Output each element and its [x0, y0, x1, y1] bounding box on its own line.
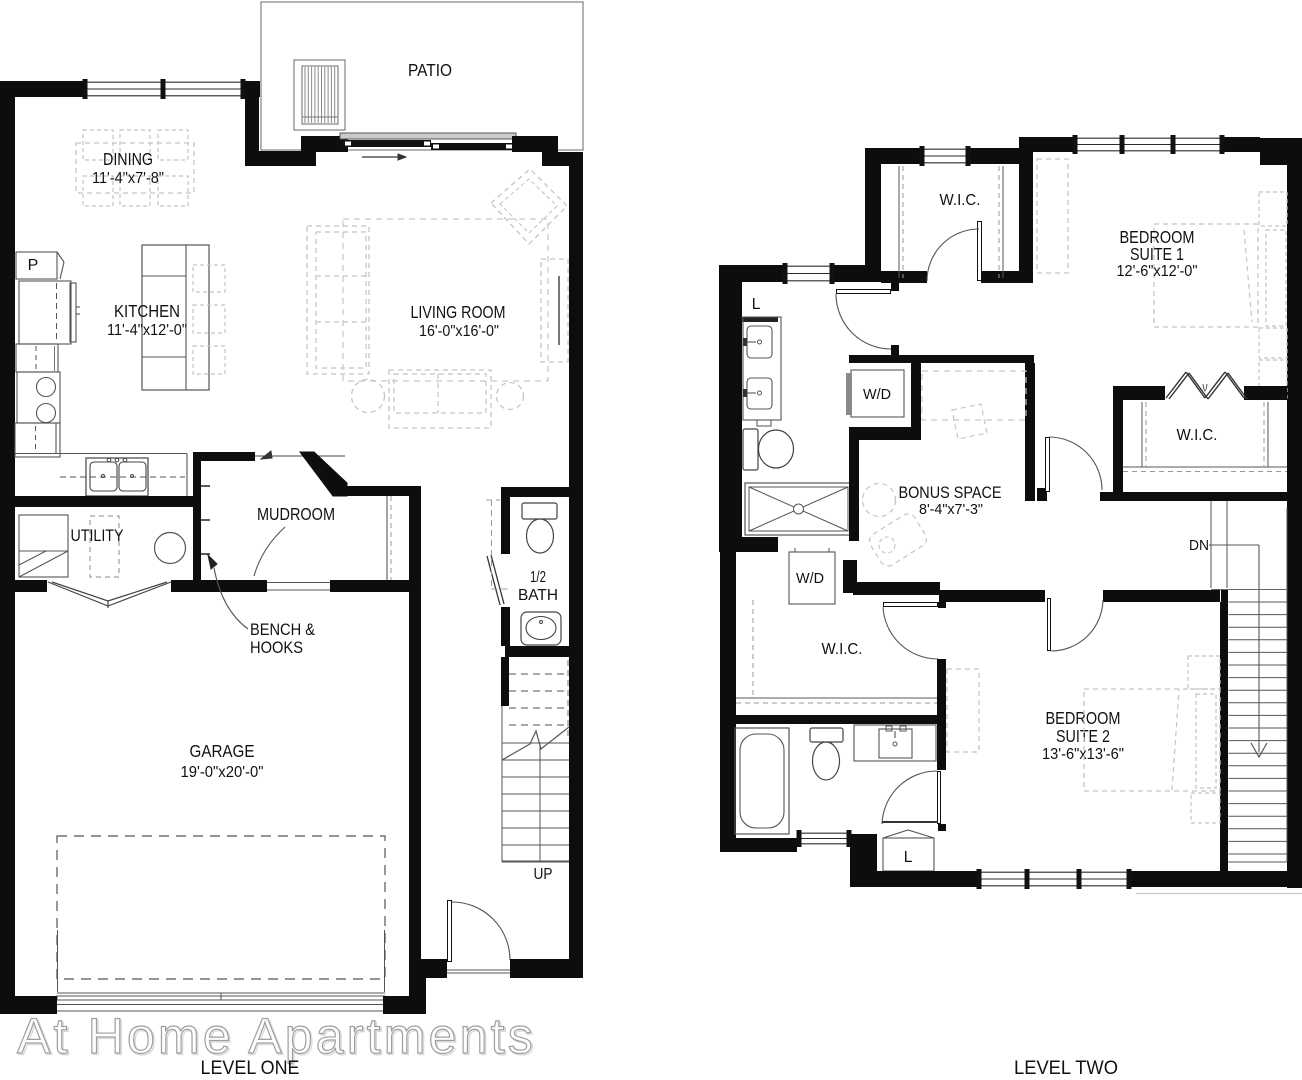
- svg-text:8'-4"x7'-3": 8'-4"x7'-3": [919, 501, 983, 518]
- svg-text:12'-6"x12'-0": 12'-6"x12'-0": [1117, 263, 1198, 280]
- svg-text:LEVEL ONE: LEVEL ONE: [201, 1057, 300, 1079]
- svg-text:11'-4"x12'-0": 11'-4"x12'-0": [107, 322, 187, 339]
- svg-text:LEVEL TWO: LEVEL TWO: [1014, 1057, 1118, 1079]
- svg-text:LIVING ROOM: LIVING ROOM: [411, 302, 506, 322]
- svg-text:MUDROOM: MUDROOM: [257, 504, 335, 524]
- svg-text:11'-4"x7'-8": 11'-4"x7'-8": [92, 170, 164, 187]
- svg-text:16'-0"x16'-0": 16'-0"x16'-0": [419, 323, 499, 340]
- svg-text:DINING: DINING: [103, 149, 153, 169]
- svg-text:UTILITY: UTILITY: [71, 527, 124, 545]
- svg-text:L: L: [752, 296, 761, 313]
- svg-text:DN: DN: [1189, 537, 1209, 554]
- svg-text:SUITE 1: SUITE 1: [1130, 244, 1184, 264]
- svg-text:HOOKS: HOOKS: [250, 639, 303, 657]
- svg-text:13'-6"x13'-6": 13'-6"x13'-6": [1042, 746, 1124, 763]
- svg-text:P: P: [28, 257, 39, 274]
- svg-text:W.I.C.: W.I.C.: [940, 192, 981, 209]
- svg-text:PATIO: PATIO: [408, 60, 452, 80]
- svg-text:GARAGE: GARAGE: [190, 741, 255, 761]
- svg-text:UP: UP: [534, 866, 553, 883]
- svg-text:BONUS SPACE: BONUS SPACE: [899, 484, 1002, 502]
- svg-text:W/D: W/D: [796, 570, 824, 587]
- svg-text:BEDROOM: BEDROOM: [1046, 708, 1121, 728]
- svg-text:BENCH &: BENCH &: [250, 621, 315, 639]
- svg-text:KITCHEN: KITCHEN: [114, 301, 180, 321]
- svg-text:W/D: W/D: [863, 386, 891, 403]
- svg-text:W.I.C.: W.I.C.: [822, 641, 863, 658]
- svg-text:19'-0"x20'-0": 19'-0"x20'-0": [181, 764, 264, 781]
- svg-text:L: L: [904, 849, 913, 866]
- svg-text:W.I.C.: W.I.C.: [1177, 427, 1218, 444]
- svg-text:1/2: 1/2: [530, 569, 546, 586]
- svg-text:SUITE 2: SUITE 2: [1056, 726, 1110, 746]
- svg-text:BATH: BATH: [518, 587, 558, 604]
- svg-text:At Home Apartments: At Home Apartments: [17, 1008, 536, 1064]
